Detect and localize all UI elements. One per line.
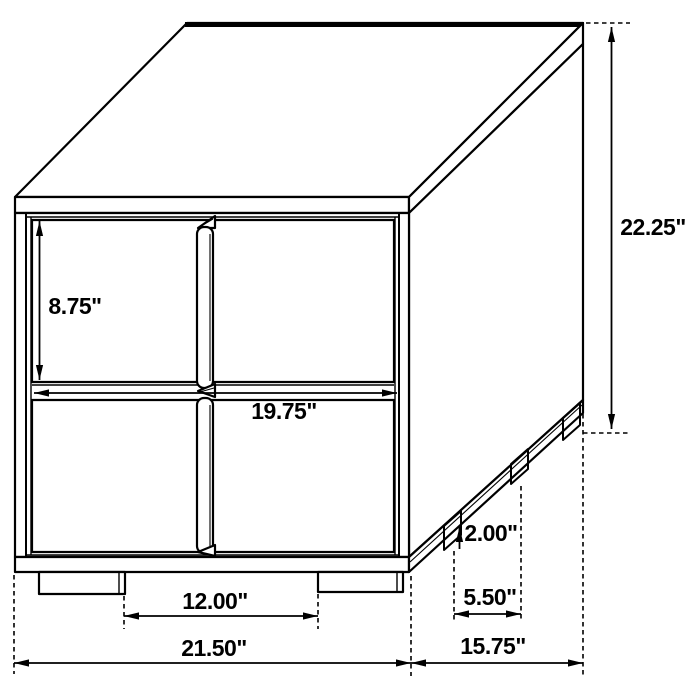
arrowhead-icon xyxy=(506,610,521,617)
arrowhead-icon xyxy=(568,659,583,666)
handle-upper-bar xyxy=(197,227,213,388)
arrowhead-icon xyxy=(14,659,29,666)
drawer-handle-upper xyxy=(197,216,215,388)
dimension-label-overall-depth: 15.75" xyxy=(460,633,525,659)
dimension-label-drawer-front-width: 19.75" xyxy=(251,398,316,424)
dimension-label-front-foot-spacing: 12.00" xyxy=(182,588,247,614)
dimension-label-drawer-front-height: 8.75" xyxy=(48,293,101,319)
arrowhead-icon xyxy=(608,414,615,429)
foot-front-right-face xyxy=(318,572,403,592)
dimension-label-overall-height: 22.25" xyxy=(620,214,685,240)
dimension-label-side-foot-spacing: 5.50" xyxy=(463,584,516,610)
dimension-front-foot-spacing: 12.00" xyxy=(124,588,318,629)
arrowhead-icon xyxy=(608,27,615,42)
dimension-label-overall-width: 21.50" xyxy=(181,635,246,661)
plinth-front xyxy=(15,557,409,572)
drawer-handle-lower xyxy=(197,384,215,556)
arrowhead-icon xyxy=(396,659,411,666)
dimension-label-foot-height: 2.00" xyxy=(464,520,517,546)
arrowhead-icon xyxy=(411,659,426,666)
page: { "diagram": { "type": "furniture-dimens… xyxy=(0,0,700,700)
dimension-foot-height: 2.00" xyxy=(456,520,518,549)
arrowhead-icon xyxy=(124,612,139,619)
handle-lower-bar xyxy=(197,398,213,553)
top-slab-front-edge xyxy=(15,197,409,213)
dimension-diagram: 8.75"22.25"19.75"2.00"5.50"12.00"21.50"1… xyxy=(0,0,700,700)
foot-front-right xyxy=(318,572,403,592)
arrowhead-icon xyxy=(303,612,318,619)
dimension-overall-height: 22.25" xyxy=(583,23,686,433)
foot-front-left xyxy=(39,572,125,594)
foot-front-left-face xyxy=(39,572,125,594)
arrowhead-icon xyxy=(454,610,469,617)
